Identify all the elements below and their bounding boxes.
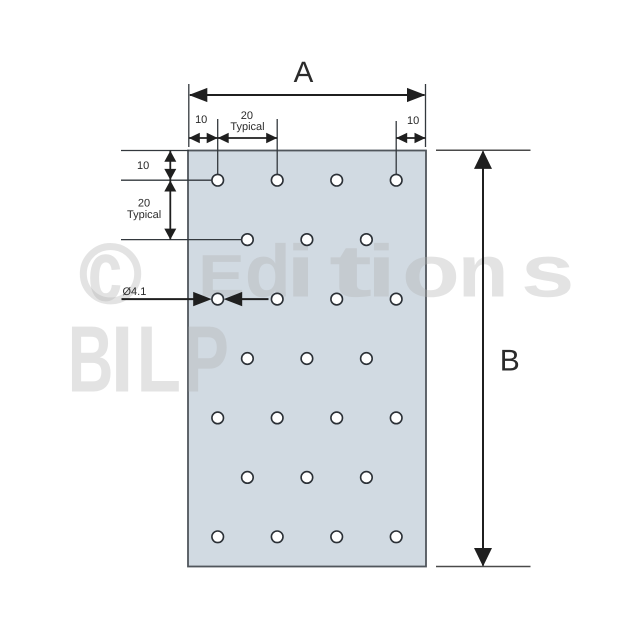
svg-text:s: s <box>521 230 575 313</box>
svg-text:L: L <box>136 308 181 413</box>
svg-text:10: 10 <box>407 115 419 127</box>
svg-text:10: 10 <box>195 114 207 126</box>
svg-text:c: c <box>88 224 122 320</box>
svg-text:I: I <box>110 308 133 413</box>
svg-text:10: 10 <box>137 160 149 172</box>
svg-text:A: A <box>294 56 314 89</box>
svg-text:Typical: Typical <box>230 121 264 133</box>
svg-text:20: 20 <box>138 198 150 210</box>
svg-text:Typical: Typical <box>127 209 161 221</box>
svg-text:Ø4.1: Ø4.1 <box>123 286 147 298</box>
svg-text:P: P <box>184 308 229 413</box>
svg-text:B: B <box>68 308 114 413</box>
svg-text:o: o <box>402 230 460 313</box>
svg-text:B: B <box>500 345 520 378</box>
